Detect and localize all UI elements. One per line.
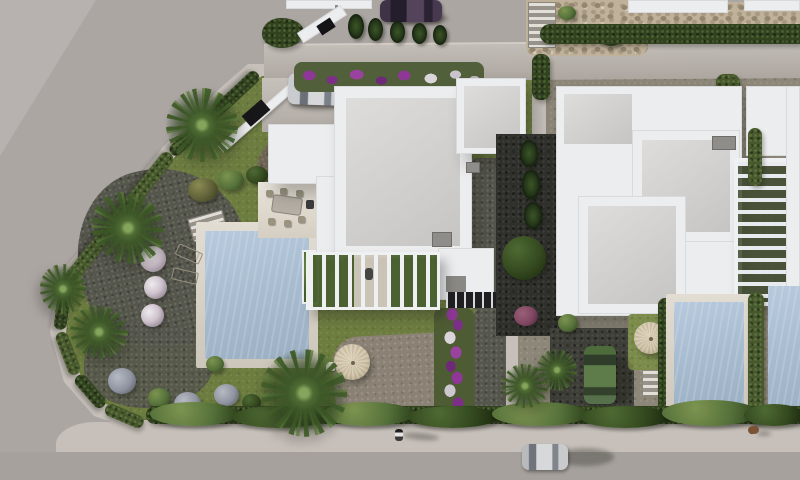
dog-shadow <box>757 431 771 436</box>
upper-roof-strip <box>286 0 372 9</box>
alley-cypress <box>520 140 538 167</box>
moving-silver-car <box>522 444 568 470</box>
villa-se-window <box>446 276 466 292</box>
hedge-tuft <box>532 54 550 100</box>
alley-cypress <box>522 170 540 199</box>
upper-right-roof <box>628 0 728 13</box>
right-villa-roof-a <box>564 94 632 144</box>
street-hedge-blob <box>492 402 588 426</box>
far-right-wall <box>786 86 800 296</box>
terrace-chair <box>266 190 273 197</box>
street-hedge-blob <box>150 402 238 426</box>
terrace-chair <box>298 216 305 223</box>
purple-car <box>380 0 442 22</box>
bottom-road <box>0 452 800 480</box>
shrub <box>218 170 244 190</box>
shrub <box>188 178 218 202</box>
terrace-chair <box>284 220 291 227</box>
white-flower-bush <box>141 304 164 327</box>
aerial-render <box>0 0 800 480</box>
cypress-bush <box>433 25 447 45</box>
cypress-bush <box>348 14 364 39</box>
green-suv <box>584 346 616 404</box>
flower-bed-east <box>434 308 474 414</box>
garden-fence <box>446 292 502 308</box>
rockery-shrub <box>558 6 576 20</box>
far-right-hedge <box>748 128 762 186</box>
terrace-chair <box>268 218 275 225</box>
villa-pergola <box>306 252 440 310</box>
upper-far-right-roof <box>744 0 800 11</box>
rooftop-unit <box>466 162 480 173</box>
right-villa-roof-c <box>588 206 676 304</box>
street-hedge-blob <box>744 404 800 426</box>
alley-cypress <box>524 202 542 229</box>
cypress-bush <box>412 23 427 44</box>
red-flower-bush <box>514 306 538 326</box>
street-hedge-blob <box>408 406 498 428</box>
palm-tree <box>166 88 238 162</box>
swimming-pool <box>205 231 309 359</box>
pergola-figure <box>365 268 373 280</box>
shrub <box>206 356 224 372</box>
terrace-chair <box>296 190 303 197</box>
rooftop-unit <box>712 136 736 150</box>
shrub <box>558 314 578 332</box>
villa-main-roof <box>346 98 460 246</box>
lavender-bush <box>108 368 136 394</box>
rooftop-unit <box>432 232 452 247</box>
terrace-chair <box>280 188 287 195</box>
cypress-bush <box>368 18 383 41</box>
pedestrian <box>395 429 403 441</box>
barbecue <box>306 200 314 209</box>
lavender-bush <box>214 384 239 406</box>
alley-tree <box>502 236 546 280</box>
upper-hedge-row <box>540 24 800 44</box>
white-flower-bush <box>144 276 167 299</box>
right-pool <box>674 302 744 410</box>
cypress-bush <box>390 21 405 43</box>
street-hedge-blob <box>580 406 670 428</box>
